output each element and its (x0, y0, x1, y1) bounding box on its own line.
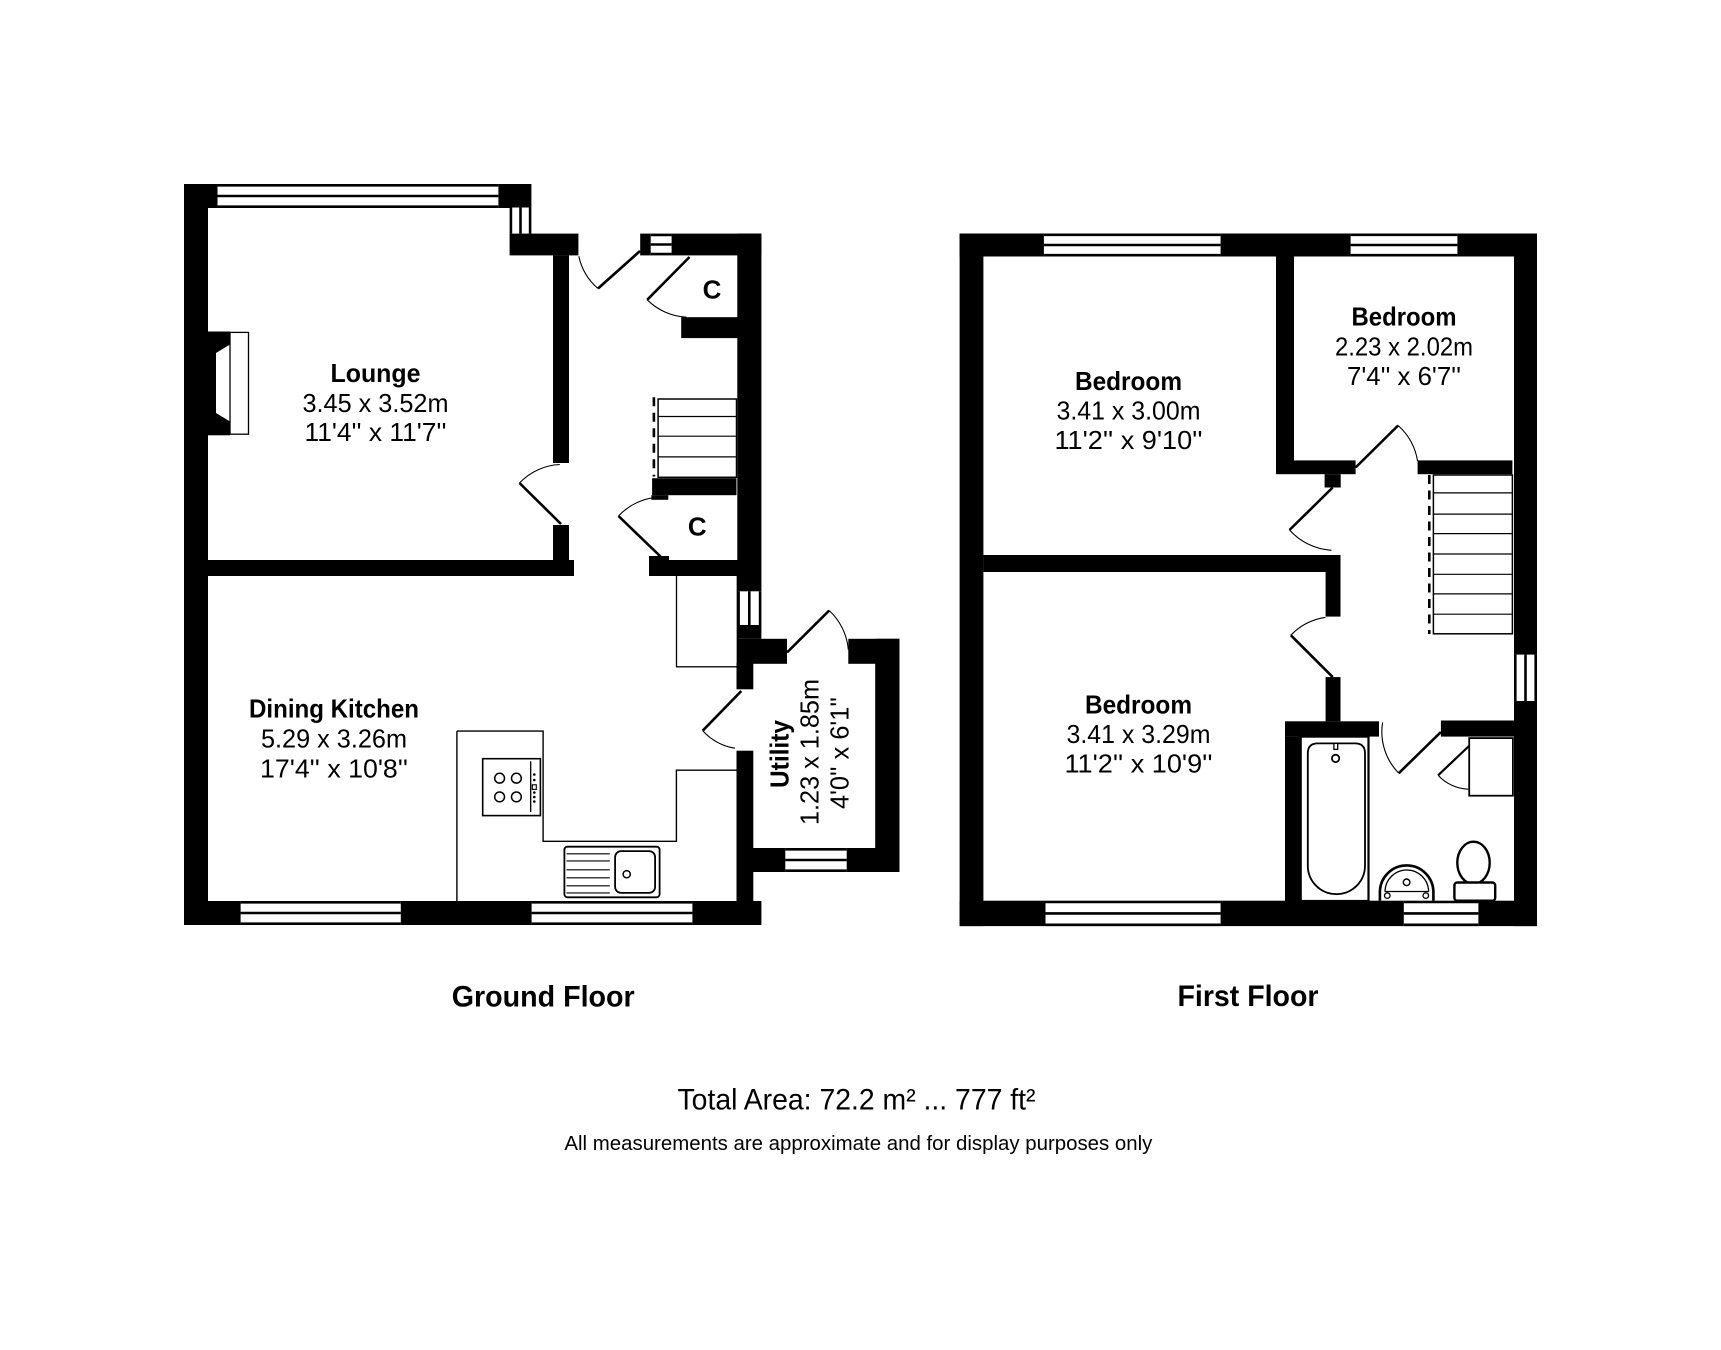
svg-text:C: C (688, 512, 707, 542)
svg-text:First Floor: First Floor (1178, 980, 1319, 1013)
svg-text:All measurements are approxima: All measurements are approximate and for… (564, 1133, 1152, 1155)
svg-text:5.29 x 3.26m: 5.29 x 3.26m (261, 724, 407, 754)
svg-text:Ground Floor: Ground Floor (452, 981, 635, 1014)
svg-text:Total Area: 72.2 m² ... 777 ft: Total Area: 72.2 m² ... 777 ft² (678, 1084, 1036, 1117)
svg-text:Bedroom: Bedroom (1352, 302, 1457, 332)
svg-text:11'4'' x 11'7'': 11'4'' x 11'7'' (305, 417, 447, 447)
svg-text:3.41 x 3.29m: 3.41 x 3.29m (1067, 719, 1211, 749)
svg-text:4'0'' x 6'1'': 4'0'' x 6'1'' (825, 697, 855, 809)
svg-text:11'2'' x 10'9'': 11'2'' x 10'9'' (1065, 749, 1213, 779)
svg-text:Utility: Utility (765, 720, 795, 788)
svg-text:3.41 x 3.00m: 3.41 x 3.00m (1057, 396, 1201, 426)
svg-text:1.23 x 1.85m: 1.23 x 1.85m (795, 679, 825, 825)
svg-text:3.45 x 3.52m: 3.45 x 3.52m (303, 388, 449, 418)
svg-text:Bedroom: Bedroom (1075, 366, 1182, 396)
svg-text:7'4'' x 6'7'': 7'4'' x 6'7'' (1347, 361, 1461, 391)
svg-text:Dining Kitchen: Dining Kitchen (249, 694, 419, 724)
svg-text:2.23 x 2.02m: 2.23 x 2.02m (1335, 332, 1473, 362)
svg-text:17'4'' x 10'8'': 17'4'' x 10'8'' (260, 754, 408, 784)
svg-text:Lounge: Lounge (331, 358, 421, 388)
svg-text:C: C (703, 275, 722, 305)
svg-text:Bedroom: Bedroom (1085, 690, 1192, 720)
svg-text:11'2'' x 9'10'': 11'2'' x 9'10'' (1055, 425, 1203, 455)
